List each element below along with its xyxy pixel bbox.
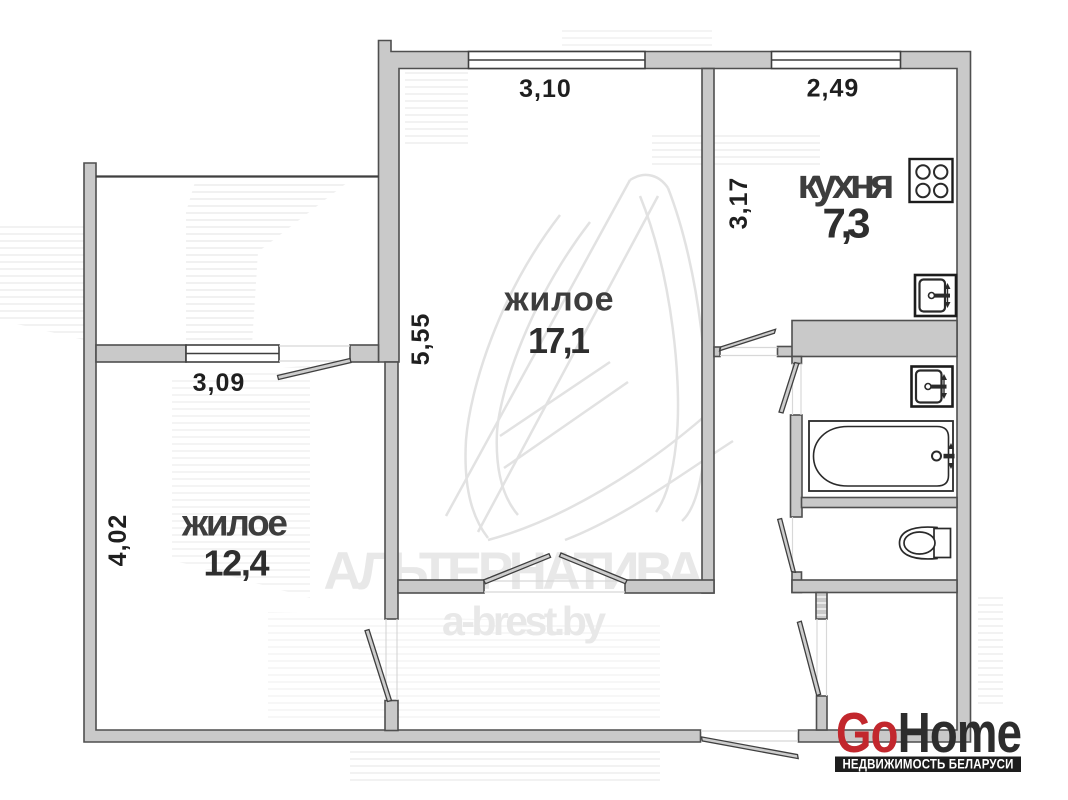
svg-text:3,17: 3,17: [725, 177, 753, 230]
svg-text:жилое: жилое: [181, 503, 288, 544]
svg-text:a-brest.by: a-brest.by: [442, 598, 606, 644]
svg-text:3,09: 3,09: [193, 369, 246, 397]
svg-text:НЕДВИЖИМОСТЬ БЕЛАРУСИ: НЕДВИЖИМОСТЬ БЕЛАРУСИ: [842, 755, 1013, 771]
svg-text:12,4: 12,4: [204, 543, 270, 584]
svg-text:4,02: 4,02: [104, 514, 132, 567]
svg-text:2,49: 2,49: [807, 75, 860, 103]
svg-text:17,1: 17,1: [528, 320, 590, 361]
svg-text:жилое: жилое: [504, 281, 614, 319]
svg-text:5,55: 5,55: [407, 313, 435, 366]
svg-text:3,10: 3,10: [519, 75, 572, 103]
svg-text:7,3: 7,3: [823, 200, 871, 247]
